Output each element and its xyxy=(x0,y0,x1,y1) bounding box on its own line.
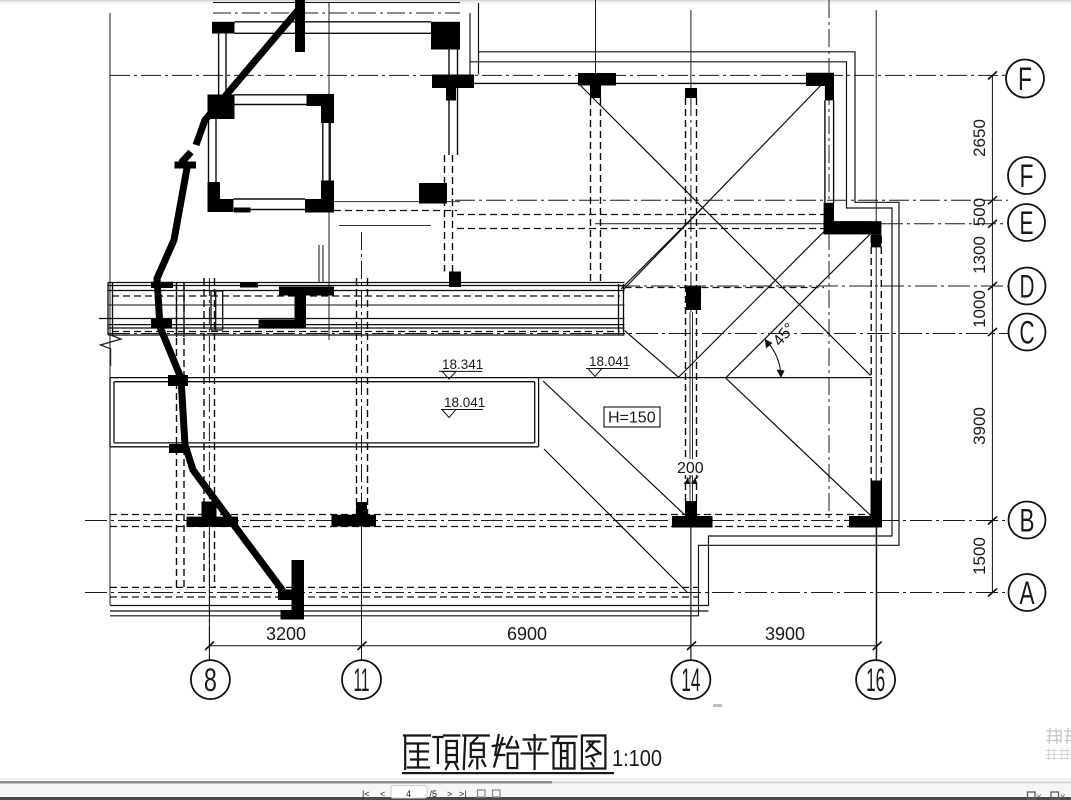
svg-text:4: 4 xyxy=(406,789,411,799)
svg-text:3900: 3900 xyxy=(970,407,989,445)
svg-text:200: 200 xyxy=(677,460,704,477)
svg-text:1500: 1500 xyxy=(970,537,989,575)
svg-text:18.041: 18.041 xyxy=(444,395,485,410)
svg-text:C: C xyxy=(1020,315,1035,351)
svg-text:|<: |< xyxy=(362,789,370,799)
svg-text:16: 16 xyxy=(866,662,885,698)
svg-text:2650: 2650 xyxy=(970,119,989,157)
svg-text:3200: 3200 xyxy=(266,624,306,644)
svg-text:<: < xyxy=(380,789,385,799)
svg-text:>|: >| xyxy=(459,789,467,799)
svg-text:H=150: H=150 xyxy=(608,410,656,427)
svg-text:6900: 6900 xyxy=(507,624,547,644)
svg-text:/5: /5 xyxy=(430,789,438,799)
svg-text:F: F xyxy=(1018,61,1032,97)
svg-text:1000: 1000 xyxy=(970,290,989,328)
svg-text:11: 11 xyxy=(354,662,370,698)
svg-text:B: B xyxy=(1020,503,1035,539)
svg-text:500: 500 xyxy=(970,198,989,226)
svg-text:A: A xyxy=(1020,575,1035,611)
svg-text:>: > xyxy=(447,789,452,799)
svg-text:3900: 3900 xyxy=(765,624,805,644)
svg-text:D: D xyxy=(1020,269,1035,305)
svg-text:18.041: 18.041 xyxy=(589,354,630,369)
svg-text:1300: 1300 xyxy=(970,236,989,274)
svg-text:8: 8 xyxy=(204,662,217,698)
svg-text:1:100: 1:100 xyxy=(612,745,662,771)
svg-text:14: 14 xyxy=(681,662,700,698)
svg-text:E: E xyxy=(1020,205,1034,241)
svg-text:18.341: 18.341 xyxy=(442,357,483,372)
svg-text:F: F xyxy=(1020,158,1034,194)
